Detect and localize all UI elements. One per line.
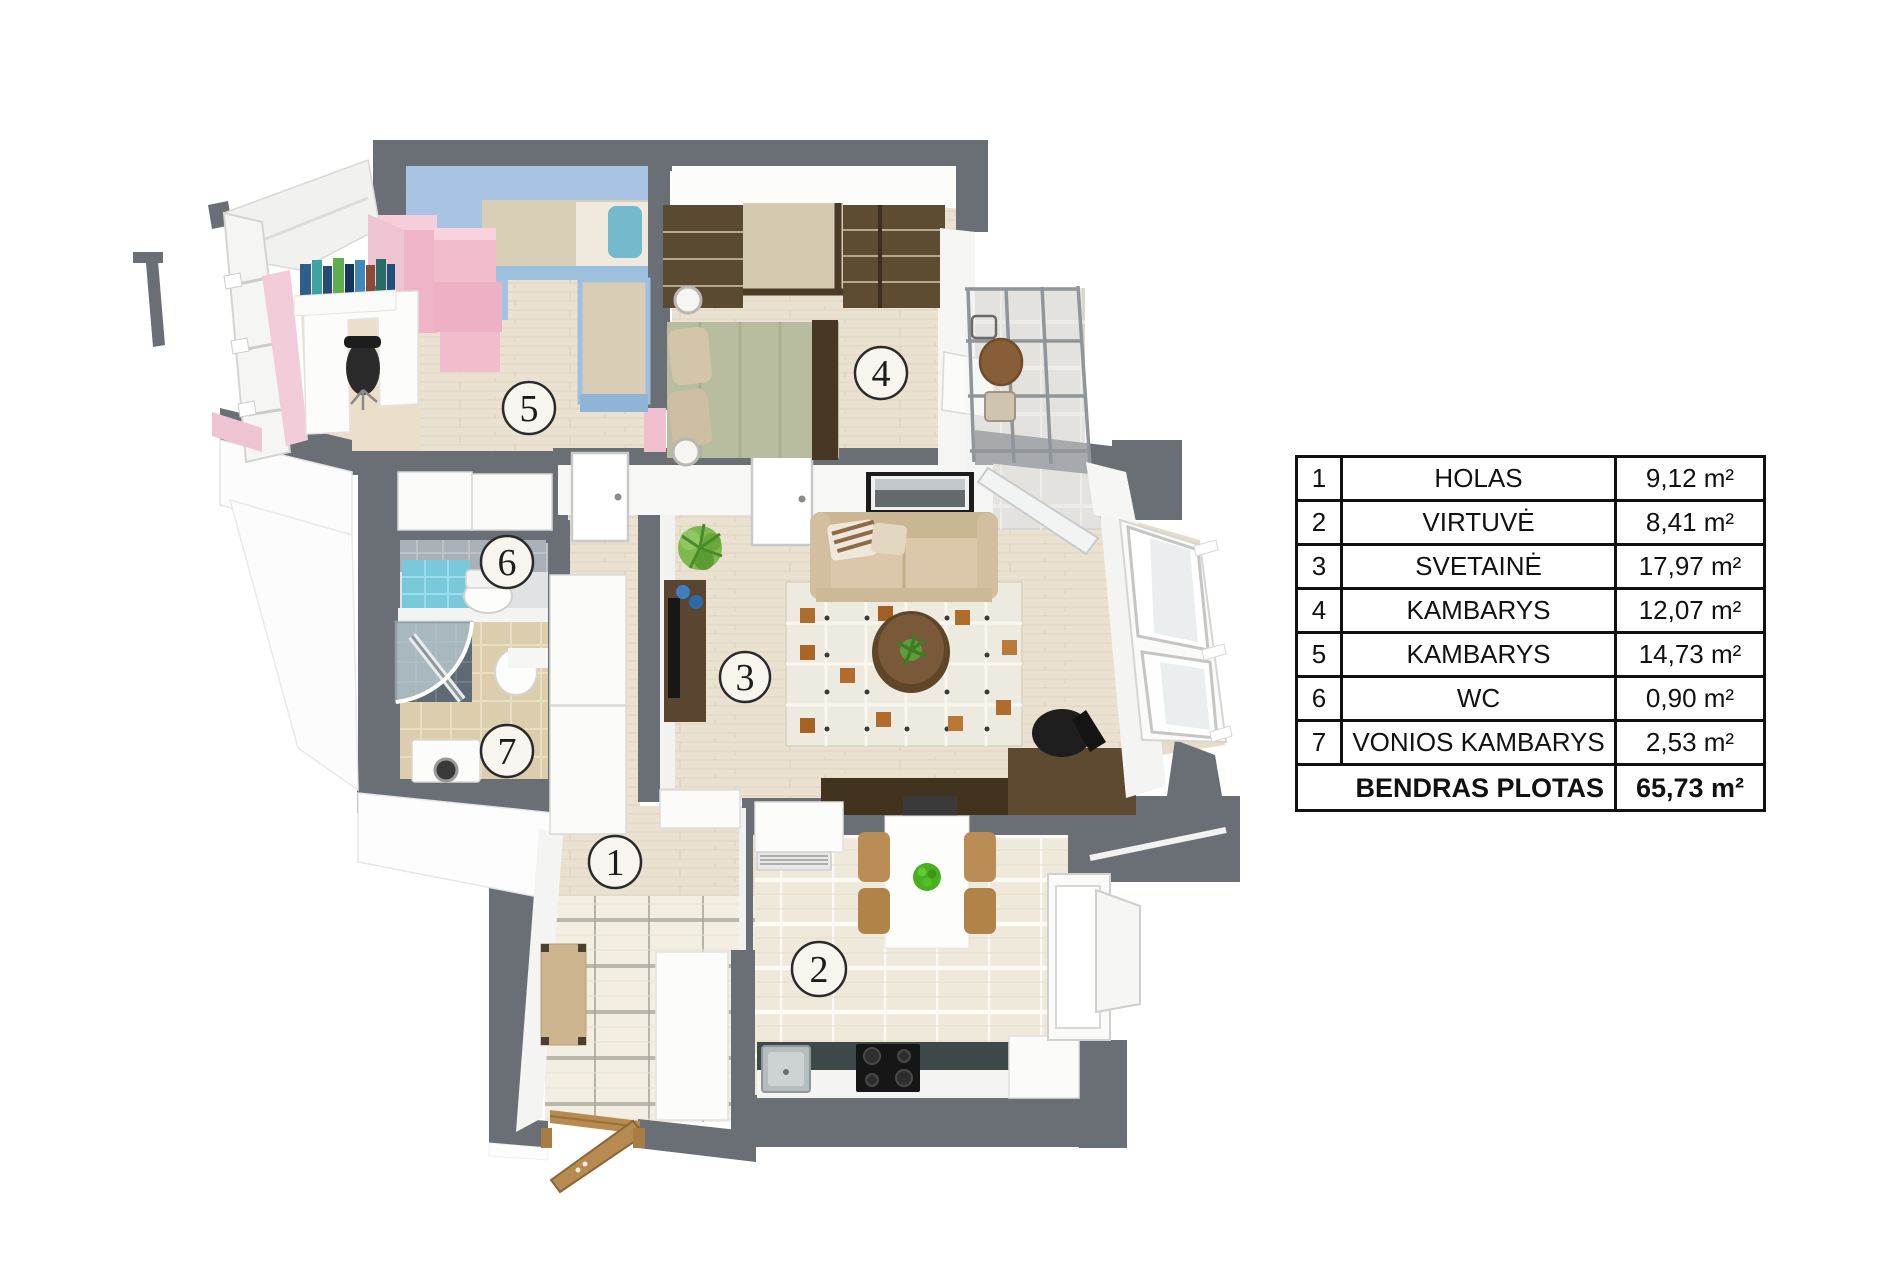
svg-text:7: 7 — [498, 731, 517, 773]
svg-text:5: 5 — [520, 388, 539, 430]
svg-text:3: 3 — [736, 657, 755, 699]
svg-text:4: 4 — [872, 353, 891, 395]
svg-text:1: 1 — [606, 842, 625, 884]
svg-text:6: 6 — [498, 542, 517, 584]
svg-text:2: 2 — [810, 949, 829, 991]
